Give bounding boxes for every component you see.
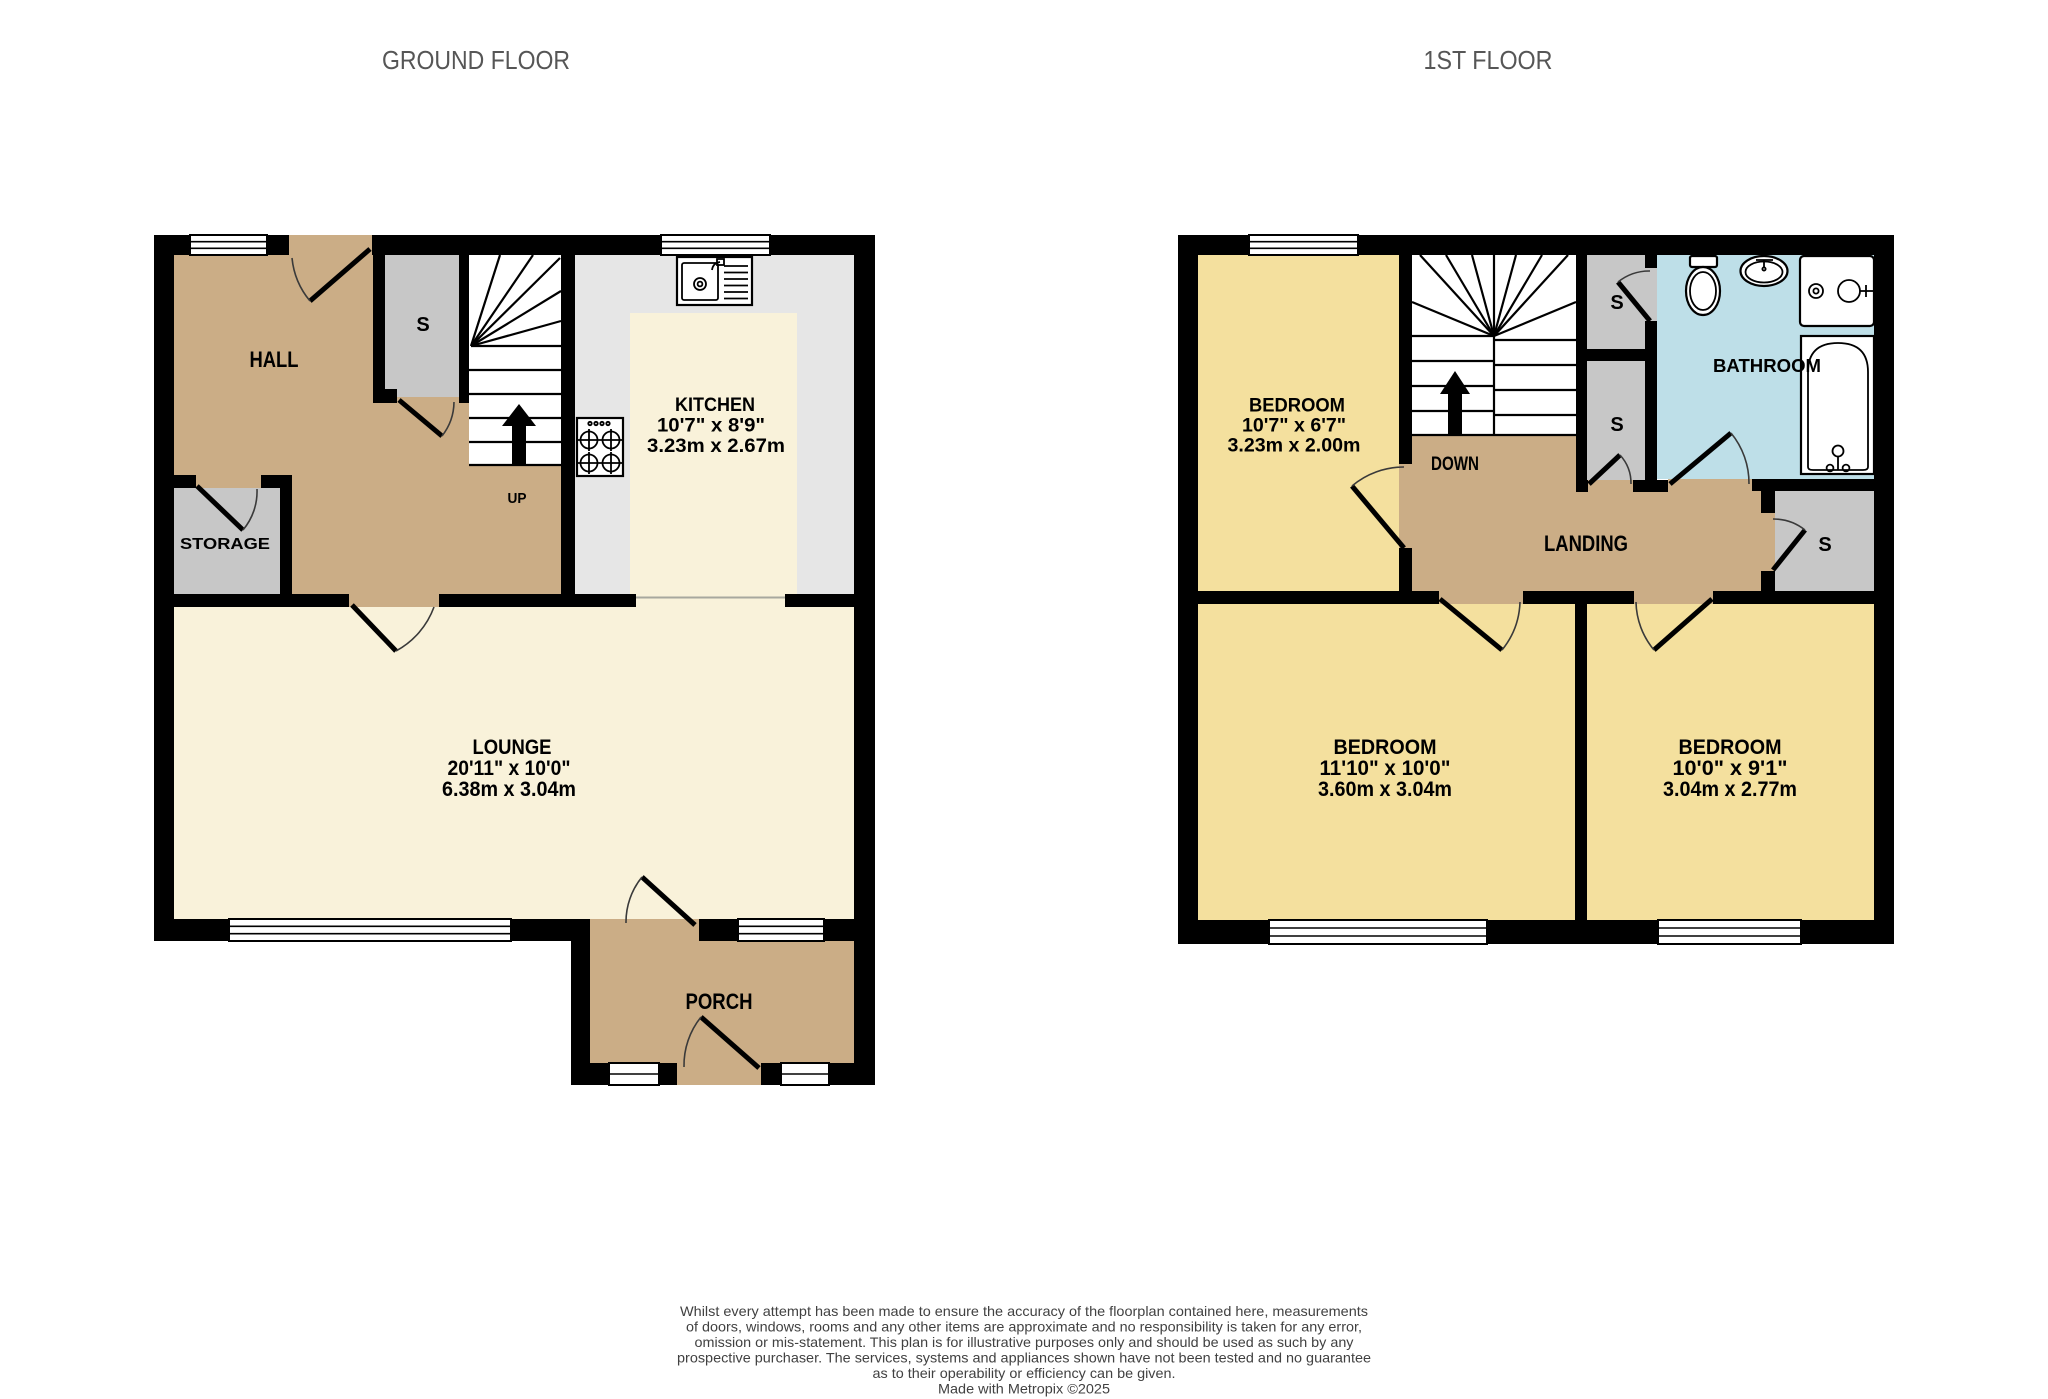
svg-text:1ST FLOOR: 1ST FLOOR	[1424, 45, 1553, 75]
svg-text:3.23m x 2.67m: 3.23m x 2.67m	[647, 435, 785, 457]
svg-text:10'0" x 9'1": 10'0" x 9'1"	[1673, 757, 1788, 780]
svg-text:BEDROOM: BEDROOM	[1249, 395, 1345, 417]
svg-text:PORCH: PORCH	[686, 989, 753, 1014]
svg-text:STORAGE: STORAGE	[180, 536, 270, 553]
svg-text:3.60m x 3.04m: 3.60m x 3.04m	[1318, 778, 1452, 801]
svg-text:LOUNGE: LOUNGE	[473, 736, 552, 759]
svg-text:KITCHEN: KITCHEN	[675, 394, 755, 416]
svg-text:UP: UP	[508, 490, 527, 507]
svg-text:Whilst every attempt has been: Whilst every attempt has been made to en…	[680, 1303, 1368, 1319]
svg-text:S: S	[1610, 414, 1623, 436]
svg-text:LANDING: LANDING	[1544, 531, 1628, 556]
svg-text:11'10" x 10'0": 11'10" x 10'0"	[1320, 757, 1451, 780]
svg-text:10'7" x 6'7": 10'7" x 6'7"	[1242, 415, 1346, 437]
svg-text:6.38m x 3.04m: 6.38m x 3.04m	[442, 778, 576, 801]
svg-text:BEDROOM: BEDROOM	[1334, 736, 1437, 759]
svg-text:of doors, windows, rooms and a: of doors, windows, rooms and any other i…	[686, 1319, 1362, 1335]
svg-text:S: S	[1610, 292, 1623, 314]
svg-text:as to their operability or eff: as to their operability or efficiency ca…	[873, 1365, 1176, 1381]
svg-text:prospective purchaser. The ser: prospective purchaser. The services, sys…	[677, 1350, 1371, 1366]
svg-text:3.04m x 2.77m: 3.04m x 2.77m	[1663, 778, 1797, 801]
svg-text:DOWN: DOWN	[1431, 454, 1479, 475]
svg-text:3.23m x 2.00m: 3.23m x 2.00m	[1228, 435, 1361, 457]
svg-text:S: S	[416, 314, 429, 336]
svg-text:GROUND FLOOR: GROUND FLOOR	[382, 45, 570, 75]
svg-text:20'11" x 10'0": 20'11" x 10'0"	[448, 757, 571, 780]
svg-text:BEDROOM: BEDROOM	[1679, 736, 1782, 759]
svg-text:S: S	[1818, 534, 1831, 556]
svg-text:Made with Metropix ©2025: Made with Metropix ©2025	[938, 1381, 1110, 1397]
svg-text:HALL: HALL	[250, 347, 299, 372]
svg-text:omission or mis-statement. Thi: omission or mis-statement. This plan is …	[695, 1334, 1354, 1350]
svg-text:10'7" x 8'9": 10'7" x 8'9"	[657, 415, 765, 437]
svg-text:BATHROOM: BATHROOM	[1713, 355, 1821, 376]
